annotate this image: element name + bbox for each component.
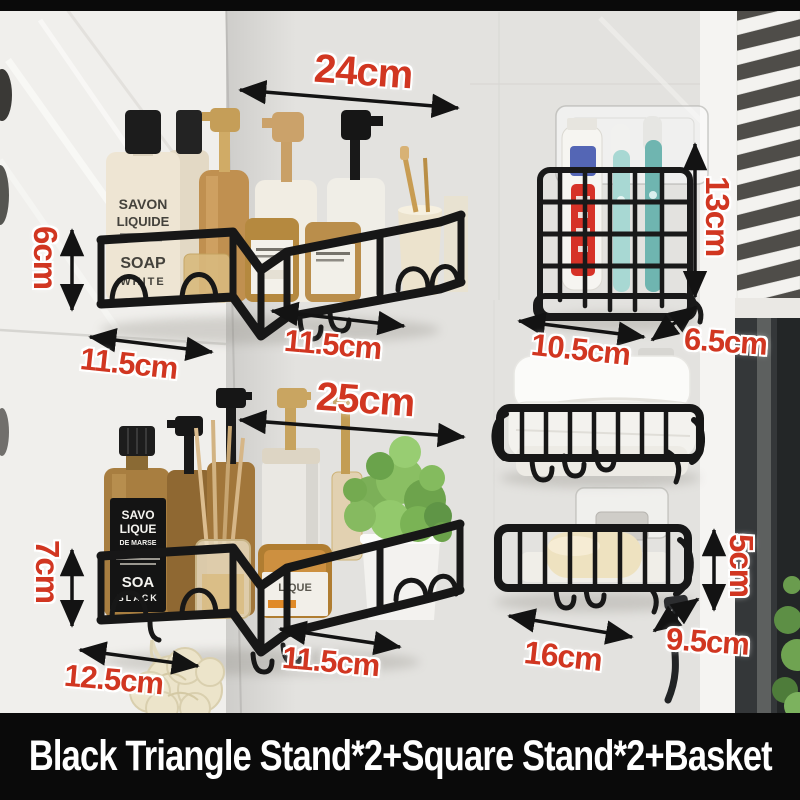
- product-image: SAVON LIQUIDE SOAP WHITE: [0, 0, 800, 800]
- dim-label-shelf1-width: 24cm: [313, 47, 414, 99]
- svg-text:LIQUE: LIQUE: [278, 582, 312, 594]
- dim-label-shelf2-height: 7cm: [28, 540, 66, 603]
- dim-label-soap-depth: 9.5cm: [665, 621, 750, 663]
- svg-text:SAVO: SAVO: [121, 508, 154, 522]
- svg-text:SOA: SOA: [122, 574, 155, 591]
- svg-text:LIQUIDE: LIQUIDE: [117, 214, 170, 229]
- dim-label-shelf1-height: 6cm: [26, 226, 64, 289]
- svg-text:LIQUE: LIQUE: [120, 522, 157, 536]
- dim-label-soap-height: 5cm: [722, 534, 760, 597]
- window-blinds: [735, 6, 800, 322]
- dim-label-shelf2-width: 25cm: [315, 375, 416, 427]
- caption-text: Black Triangle Stand*2+Square Stand*2+Ba…: [29, 732, 772, 781]
- top-letterbox-bar: [0, 0, 800, 11]
- dim-label-toothbrush-depth: 6.5cm: [683, 321, 768, 363]
- dim-label-toothbrush-height: 13cm: [698, 176, 736, 256]
- svg-text:SOAP: SOAP: [120, 255, 166, 272]
- svg-text:SAVON: SAVON: [119, 196, 168, 212]
- svg-text:DE MARSE: DE MARSE: [120, 540, 157, 547]
- caption-banner: Black Triangle Stand*2+Square Stand*2+Ba…: [0, 713, 800, 800]
